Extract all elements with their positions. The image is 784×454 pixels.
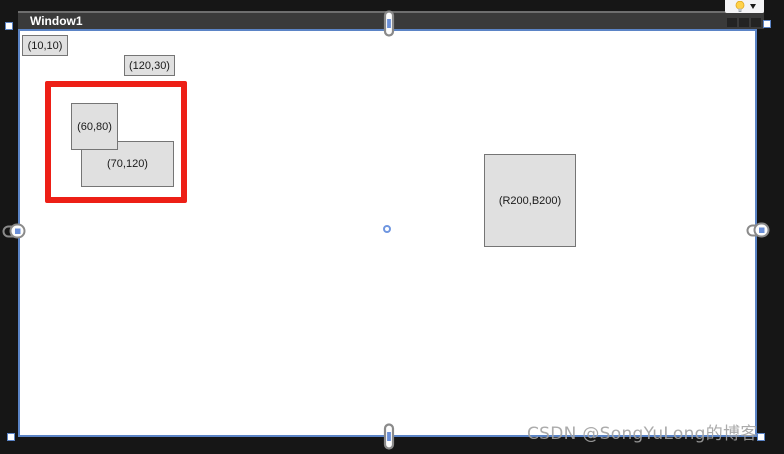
designer-stage: Window1 (10,10) (120,30) (70,120) [0,0,784,454]
control-label-120-30[interactable]: (120,30) [124,55,175,76]
margin-anchor-right[interactable] [746,221,770,239]
chevron-down-icon [750,4,756,9]
control-label-10-10[interactable]: (10,10) [22,35,68,56]
control-box-text: (R200,B200) [499,195,561,207]
margin-anchor-bottom[interactable] [383,423,395,450]
lightbulb-icon [734,1,746,13]
control-box-text: (60,80) [77,121,112,133]
design-surface[interactable]: (10,10) (120,30) (70,120) (60,80) (R200,… [18,29,757,437]
resize-handle-bottom-right[interactable] [757,433,765,441]
resize-handle-top-left[interactable] [5,22,13,30]
maximize-button-placeholder [739,18,749,27]
control-label-text: (120,30) [129,60,170,72]
control-label-text: (10,10) [28,40,63,52]
window-title: Window1 [30,14,83,28]
control-box-text: (70,120) [107,158,148,170]
resize-handle-top-right[interactable] [763,20,771,28]
chain-link-icon [383,10,395,37]
quick-actions-button[interactable] [725,0,764,13]
watermark-text: CSDN @SongYuLong的博客 [527,419,758,444]
control-box-60-80[interactable]: (60,80) [71,103,118,150]
chain-link-icon [746,221,770,239]
chain-link-icon [383,423,395,450]
resize-handle-bottom-left[interactable] [7,433,15,441]
minimize-button-placeholder [727,18,737,27]
control-box-r200-b200[interactable]: (R200,B200) [484,154,576,247]
center-anchor-indicator [383,225,391,233]
margin-anchor-left[interactable] [2,222,26,240]
margin-anchor-top[interactable] [383,10,395,37]
titlebar-buttons [727,18,761,27]
chain-link-icon [2,222,26,240]
close-button-placeholder [751,18,761,27]
